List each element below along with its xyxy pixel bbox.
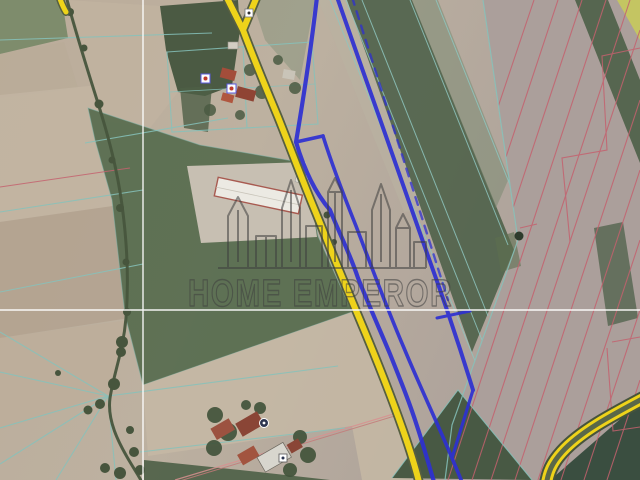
building-marker-square-top bbox=[245, 9, 253, 17]
poi-marker-circle-bottom bbox=[260, 419, 269, 428]
field-layer bbox=[0, 0, 640, 480]
satellite-map: HOME EMPEROR bbox=[0, 0, 640, 480]
watermark-text: HOME EMPEROR bbox=[188, 273, 453, 315]
building-marker-red-dot-1 bbox=[201, 74, 210, 83]
building-marker-red-dot-2 bbox=[227, 84, 236, 93]
building-marker-square-bottom bbox=[279, 454, 287, 462]
map-viewport[interactable]: HOME EMPEROR bbox=[0, 0, 640, 480]
